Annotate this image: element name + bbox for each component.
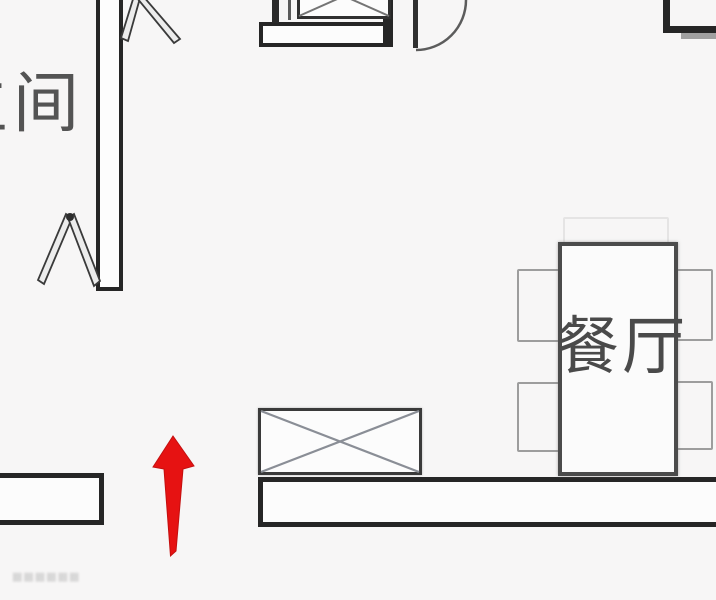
dining-chair-ghost: [563, 217, 669, 244]
red-up-arrow: [153, 436, 194, 556]
door-leaf: [413, 0, 418, 48]
door-swing-arc: [416, 0, 466, 50]
bathroom-folding-door-leaf-left: [38, 214, 72, 284]
dining-room-label: 餐厅: [556, 316, 688, 379]
folding-door-hinge: [66, 213, 74, 221]
kitchen-wall-bar: [259, 22, 393, 47]
crossed-cabinet: [258, 408, 422, 475]
watermark: ▦▦▦▦▦▦: [12, 570, 80, 583]
bathroom-wall: [96, 0, 123, 291]
top-folding-door-leaf-right: [137, 0, 180, 43]
top-right-wall-horizontal: [663, 26, 716, 33]
bathroom-label: 生间: [0, 70, 84, 136]
top-right-counter-shadow: [681, 33, 716, 39]
top-folding-door-leaf-left: [121, 0, 140, 41]
bottom-left-wall: [0, 473, 104, 525]
kitchen-wall-stub-thin: [288, 0, 291, 20]
bottom-right-wall: [258, 477, 716, 527]
kitchen-wall-stub: [272, 0, 279, 23]
floor-plan-page: { "page": { "type": "apartment-floor-pla…: [0, 0, 716, 600]
floor-plan-canvas: 生间 餐厅 ▦▦▦▦▦▦: [0, 0, 716, 600]
kitchen-crossed-appliance: [297, 0, 391, 19]
